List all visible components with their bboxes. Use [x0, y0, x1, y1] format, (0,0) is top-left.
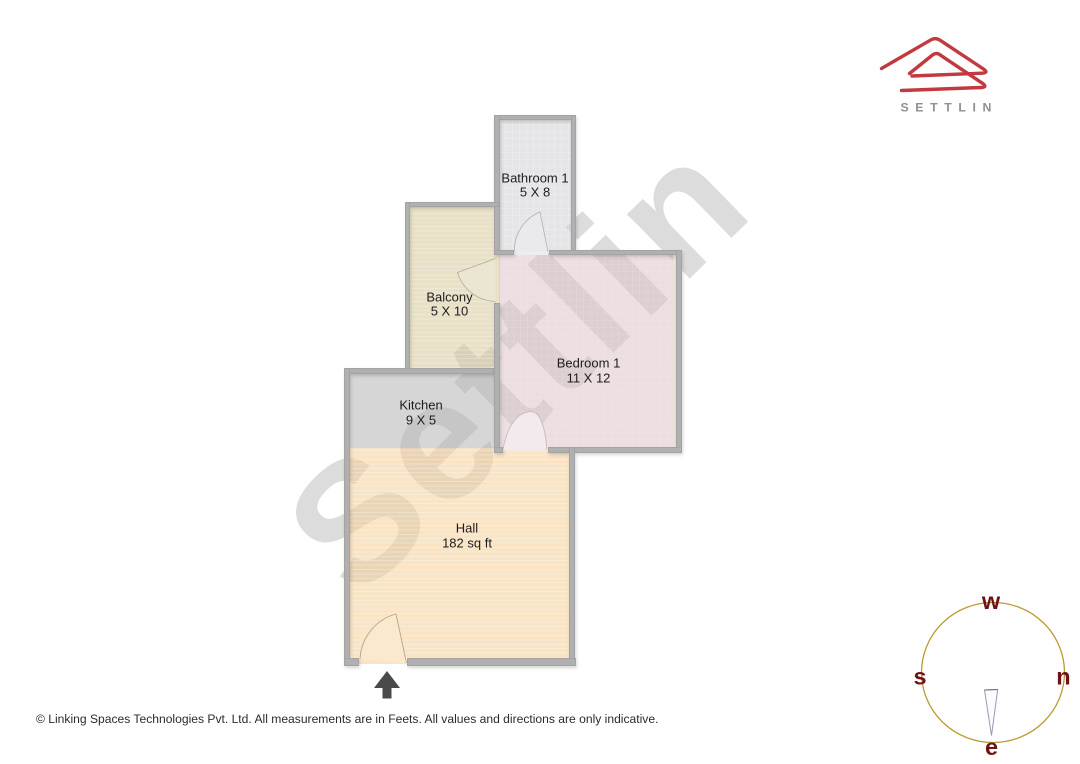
svg-text:s: s	[913, 663, 926, 689]
svg-text:w: w	[981, 588, 1001, 614]
svg-text:n: n	[1056, 664, 1070, 690]
svg-text:SETTLIN: SETTLIN	[901, 101, 998, 115]
svg-text:e: e	[985, 734, 998, 760]
